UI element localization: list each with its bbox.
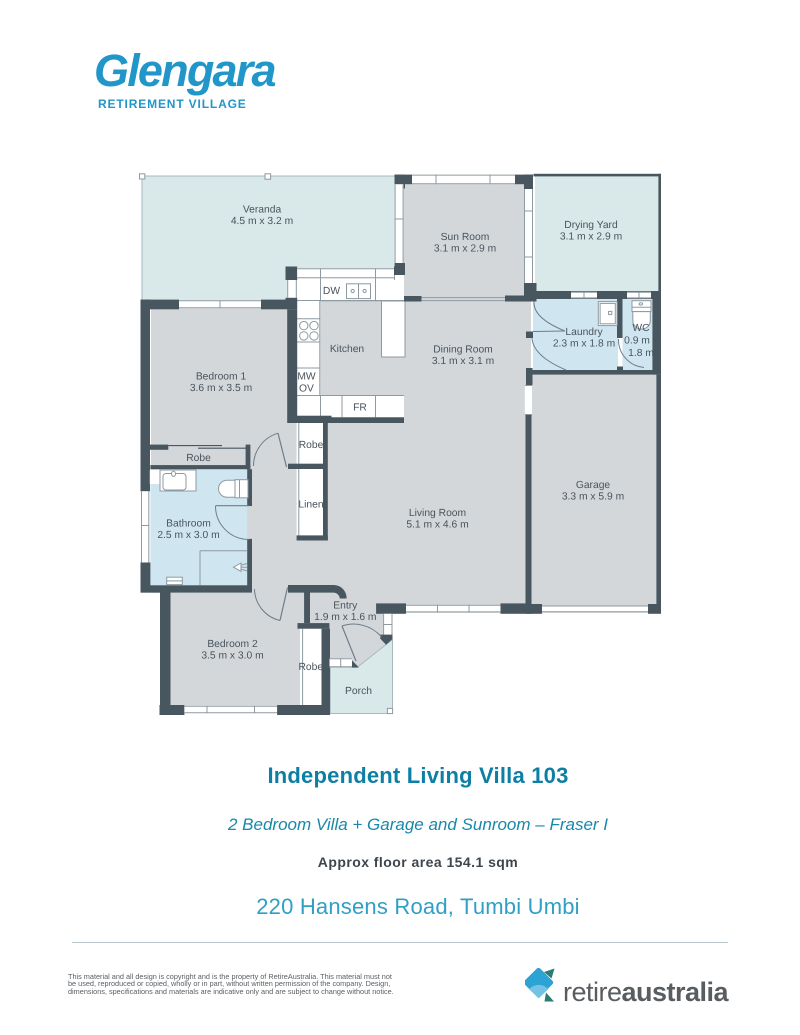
svg-text:3.1 m x 3.1 m: 3.1 m x 3.1 m (432, 356, 494, 367)
svg-text:Robe: Robe (299, 440, 324, 451)
svg-text:Entry: Entry (333, 601, 358, 612)
svg-text:Bedroom 2: Bedroom 2 (207, 639, 258, 650)
svg-text:2.5 m x 3.0 m: 2.5 m x 3.0 m (157, 530, 219, 541)
svg-text:WC: WC (632, 323, 650, 334)
svg-text:Linen: Linen (298, 500, 323, 511)
svg-text:Veranda: Veranda (243, 205, 282, 216)
svg-text:Drying Yard: Drying Yard (564, 220, 618, 231)
svg-text:3.5 m x 3.0 m: 3.5 m x 3.0 m (201, 650, 263, 661)
svg-text:Robe: Robe (298, 662, 323, 673)
svg-text:1.9 m x 1.6 m: 1.9 m x 1.6 m (314, 612, 376, 623)
svg-text:Garage: Garage (576, 480, 611, 491)
svg-text:FR: FR (353, 403, 367, 414)
svg-text:Dining Room: Dining Room (433, 345, 493, 356)
svg-text:Sun Room: Sun Room (441, 232, 490, 243)
svg-text:0.9 m x: 0.9 m x (624, 336, 659, 347)
svg-text:3.3 m x 5.9 m: 3.3 m x 5.9 m (562, 491, 624, 502)
svg-text:2.3 m x 1.8 m: 2.3 m x 1.8 m (553, 338, 615, 349)
svg-text:3.1 m x 2.9 m: 3.1 m x 2.9 m (434, 243, 496, 254)
svg-text:1.8 m: 1.8 m (628, 348, 654, 359)
svg-text:4.5 m x 3.2 m: 4.5 m x 3.2 m (231, 216, 293, 227)
svg-text:5.1 m x 4.6 m: 5.1 m x 4.6 m (406, 519, 468, 530)
svg-text:MW: MW (297, 372, 316, 383)
svg-text:Living Room: Living Room (409, 508, 466, 519)
svg-text:OV: OV (299, 384, 314, 395)
svg-text:Laundry: Laundry (565, 327, 603, 338)
svg-text:Porch: Porch (345, 686, 372, 697)
svg-text:Bedroom 1: Bedroom 1 (196, 372, 247, 383)
svg-text:Bathroom: Bathroom (166, 519, 211, 530)
svg-text:Robe: Robe (186, 453, 211, 464)
svg-text:3.6 m x 3.5 m: 3.6 m x 3.5 m (190, 383, 252, 394)
svg-text:DW: DW (323, 286, 340, 297)
svg-text:Kitchen: Kitchen (330, 344, 365, 355)
svg-text:3.1 m x 2.9 m: 3.1 m x 2.9 m (560, 231, 622, 242)
